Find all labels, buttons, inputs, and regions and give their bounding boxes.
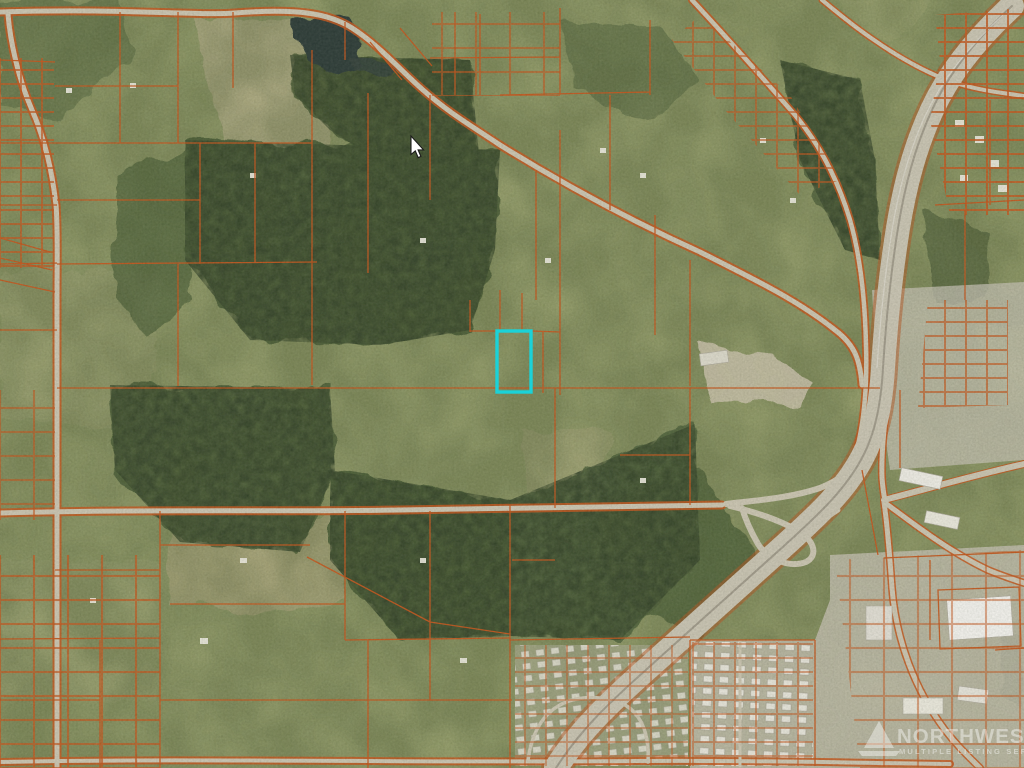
watermark-line1: NORTHWEST [897, 725, 1024, 748]
map-viewport[interactable]: NORTHWEST MULTIPLE LISTING SERVICE [0, 0, 1024, 768]
grain-light-overlay [0, 0, 1024, 768]
watermark-line2: MULTIPLE LISTING SERVICE [899, 747, 1024, 756]
parcel-map-canvas[interactable]: NORTHWEST MULTIPLE LISTING SERVICE [0, 0, 1024, 768]
nwmls-logo-underline [858, 751, 900, 756]
